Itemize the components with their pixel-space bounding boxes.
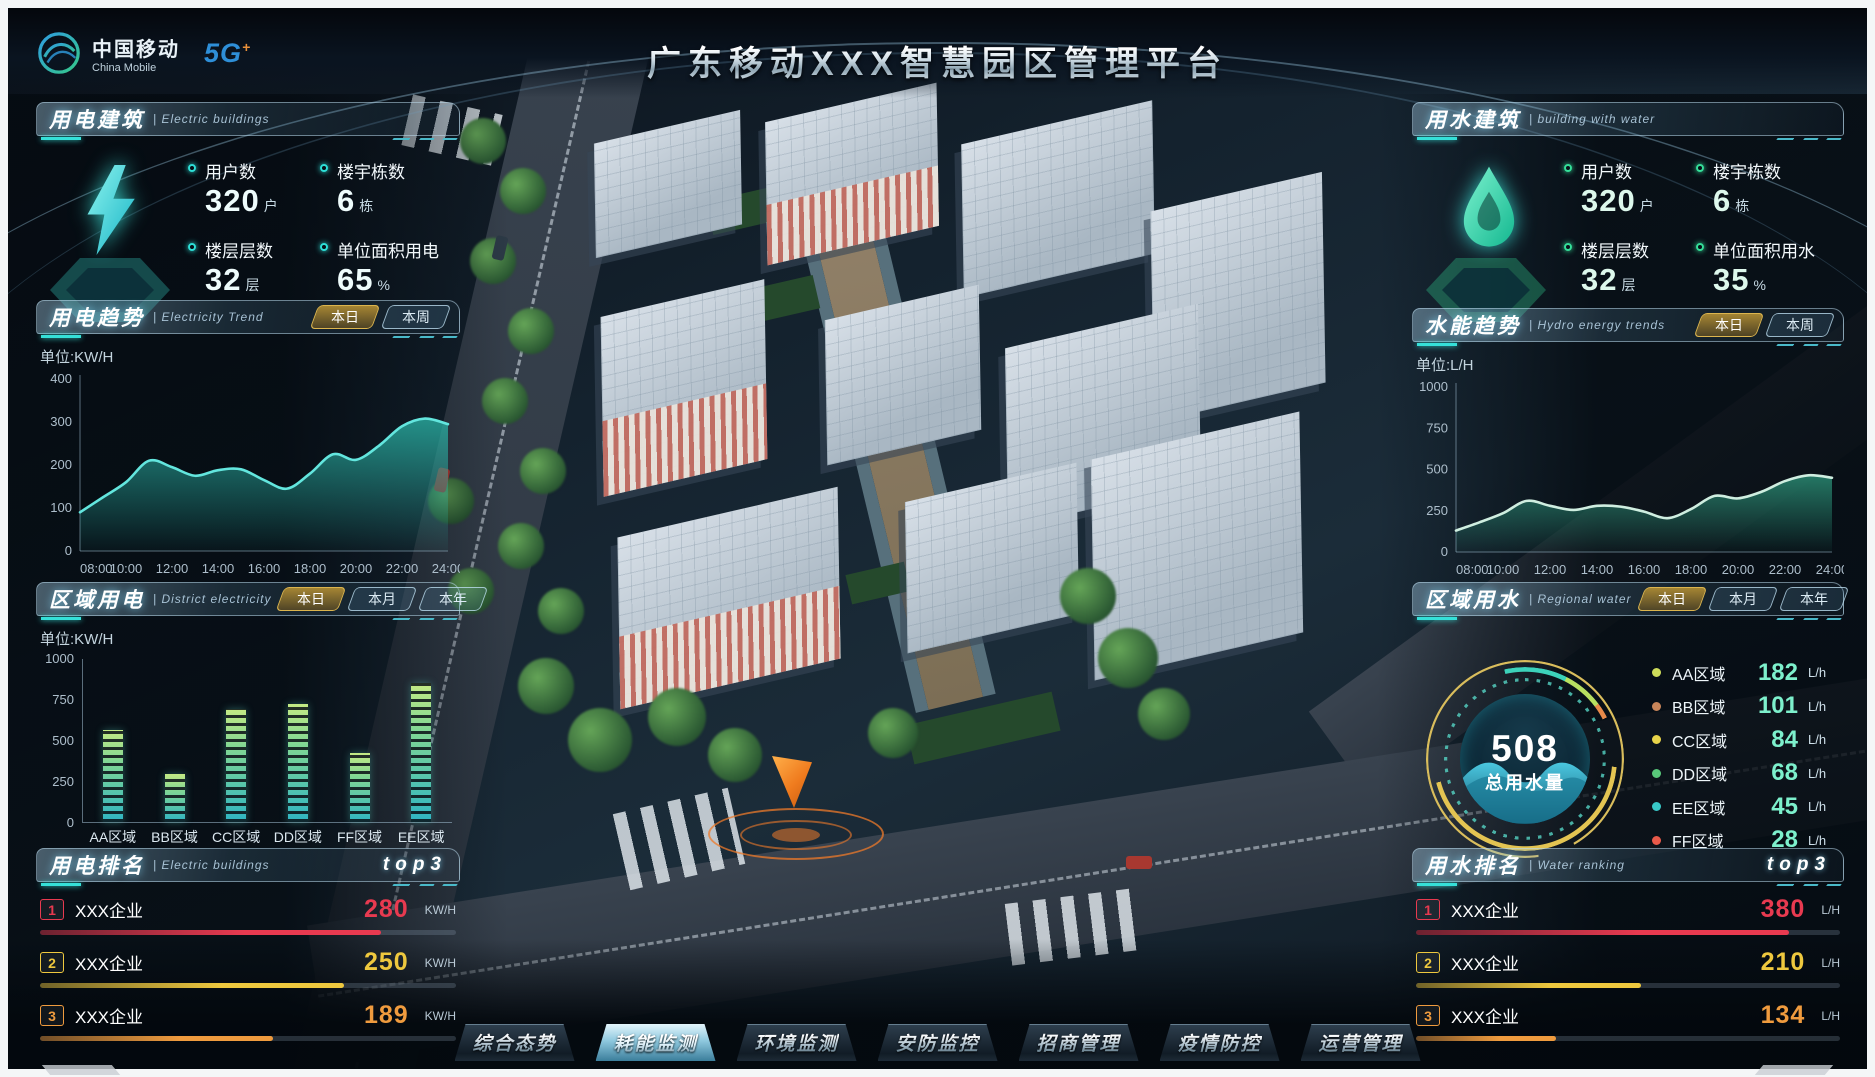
rank-value: 134 xyxy=(1761,1001,1806,1030)
tab-today[interactable]: 本日 xyxy=(276,587,347,611)
company-name: XXX企业 xyxy=(1451,950,1519,975)
svg-text:1000: 1000 xyxy=(1419,379,1448,394)
svg-text:400: 400 xyxy=(50,371,72,386)
tab-today[interactable]: 本日 xyxy=(1694,313,1765,337)
panel-title-bar: 用电建筑 | Electric buildings xyxy=(36,102,460,136)
svg-text:24:00: 24:00 xyxy=(1816,562,1844,577)
rank-badge: 2 xyxy=(40,952,64,973)
total-water-label: 总用水量 xyxy=(1460,769,1590,795)
rank-progress-track xyxy=(1416,930,1840,935)
panel-title: 用水建筑 xyxy=(1425,104,1521,134)
panel-subtitle: | Electric buildings xyxy=(153,112,270,126)
rank-progress-fill xyxy=(40,983,344,988)
tab-year[interactable]: 本年 xyxy=(1778,587,1849,611)
stat-dot-icon xyxy=(188,243,196,251)
svg-text:14:00: 14:00 xyxy=(1581,562,1614,577)
rank-badge: 3 xyxy=(40,1005,64,1026)
panel-water-building: 用水建筑 | building with water 用户数 320户 xyxy=(1412,102,1844,308)
svg-text:16:00: 16:00 xyxy=(248,561,281,576)
nav-item-investment-mgmt[interactable]: 招商管理 xyxy=(1019,1024,1139,1061)
panel-water-ranking: 用水排名 | Water ranking top3 1 XXX企业 380 L/… xyxy=(1412,848,1844,1041)
panel-subtitle: | District electricity xyxy=(153,592,271,606)
stat-dot-icon xyxy=(188,164,196,172)
rank-progress-track xyxy=(1416,1036,1840,1041)
legend-row: DD区域68L/h xyxy=(1652,757,1844,791)
tab-today[interactable]: 本日 xyxy=(310,305,381,329)
svg-text:16:00: 16:00 xyxy=(1628,562,1661,577)
panel-subtitle: | Regional water xyxy=(1529,592,1632,606)
stat-floors: 楼层层数 32层 xyxy=(188,237,310,298)
rank-progress-track xyxy=(40,1036,456,1041)
electricity-trend-chart: 010020030040008:0010:0012:0014:0016:0018… xyxy=(36,369,460,581)
svg-text:24:00: 24:00 xyxy=(432,561,460,576)
svg-text:20:00: 20:00 xyxy=(1722,562,1755,577)
panel-subtitle: | Electricity Trend xyxy=(153,310,264,324)
water-drop-icon xyxy=(1420,162,1552,312)
stat-dot-icon xyxy=(1696,243,1704,251)
title-dashes xyxy=(1776,884,1841,886)
panel-electricity-trend: 用电趋势 | Electricity Trend 本日 本周 单位:KW/H 0… xyxy=(36,300,460,586)
rank-progress-track xyxy=(40,983,456,988)
panel-electric-ranking: 用电排名 | Electric buildings top3 1 XXX企业 2… xyxy=(36,848,460,1041)
company-name: XXX企业 xyxy=(75,1003,143,1028)
total-water-value: 508 xyxy=(1460,728,1590,770)
panel-title-bar: 区域用电 | District electricity 本日 本月 本年 xyxy=(36,582,460,616)
panel-title: 用电趋势 xyxy=(49,302,145,332)
legend-dot-icon xyxy=(1652,769,1661,778)
panel-title-bar: 用水建筑 | building with water xyxy=(1412,102,1844,136)
legend-row: BB区域101L/h xyxy=(1652,690,1844,724)
company-name: XXX企业 xyxy=(1451,897,1519,922)
stat-dot-icon xyxy=(1564,164,1572,172)
rank-progress-track xyxy=(40,930,456,935)
rank-progress-fill xyxy=(1416,1036,1556,1041)
panel-title: 用电排名 xyxy=(49,850,145,880)
page-title: 广东移动XXX智慧园区管理平台 xyxy=(8,36,1867,85)
title-dashes xyxy=(392,336,457,338)
ranking-row: 3 XXX企业 134 L/H xyxy=(1416,1001,1840,1041)
stat-dot-icon xyxy=(320,164,328,172)
legend-dot-icon xyxy=(1652,836,1661,845)
rank-badge: 2 xyxy=(1416,952,1440,973)
tab-week[interactable]: 本周 xyxy=(381,305,452,329)
svg-text:500: 500 xyxy=(1426,462,1448,477)
rank-badge: 1 xyxy=(40,899,64,920)
svg-text:20:00: 20:00 xyxy=(340,561,373,576)
bottom-nav: 综合态势 耗能监测 环境监测 安防监控 招商管理 疫情防控 运营管理 xyxy=(455,1024,1421,1061)
rank-progress-fill xyxy=(40,1036,273,1041)
legend-dot-icon xyxy=(1652,668,1661,677)
stat-users: 用户数 320户 xyxy=(188,158,310,219)
panel-electric-building: 用电建筑 | Electric buildings 用户数 320户 楼宇栋数 xyxy=(36,102,460,308)
nav-item-operation-mgmt[interactable]: 运营管理 xyxy=(1301,1024,1421,1061)
stat-buildings: 楼宇栋数 6栋 xyxy=(320,158,439,219)
dashboard-frame: 中国移动 China Mobile 5G+ 广东移动XXX智慧园区管理平台 用电… xyxy=(0,0,1875,1077)
rank-badge: 1 xyxy=(1416,899,1440,920)
rank-value: 189 xyxy=(364,1001,409,1030)
ranking-row: 1 XXX企业 280 KW/H xyxy=(40,895,456,935)
legend-dot-icon xyxy=(1652,702,1661,711)
legend-dot-icon xyxy=(1652,735,1661,744)
svg-text:12:00: 12:00 xyxy=(156,561,189,576)
rank-progress-track xyxy=(1416,983,1840,988)
rank-value: 250 xyxy=(364,948,409,977)
title-dashes xyxy=(392,618,457,620)
top3-badge: top3 xyxy=(383,854,447,876)
company-name: XXX企业 xyxy=(1451,1003,1519,1028)
district-electricity-chart: 02505007501000AA区域BB区域CC区域DD区域FF区域EE区域 xyxy=(36,653,460,849)
svg-text:300: 300 xyxy=(50,414,72,429)
panel-title: 用电建筑 xyxy=(49,104,145,134)
header: 中国移动 China Mobile 5G+ 广东移动XXX智慧园区管理平台 xyxy=(8,8,1867,98)
svg-text:10:00: 10:00 xyxy=(1487,562,1520,577)
title-dashes xyxy=(392,884,457,886)
rank-progress-fill xyxy=(1416,930,1789,935)
tab-year[interactable]: 本年 xyxy=(418,587,489,611)
chart-unit-label: 单位:KW/H xyxy=(40,628,460,649)
panel-subtitle: | Hydro energy trends xyxy=(1529,318,1665,332)
stat-water-per-area: 单位面积用水 35% xyxy=(1696,237,1815,298)
svg-text:08:00: 08:00 xyxy=(1456,562,1489,577)
rank-value: 210 xyxy=(1761,948,1806,977)
top3-badge: top3 xyxy=(1767,854,1831,876)
water-legend: AA区域182L/h BB区域101L/h CC区域84L/h DD区域68L/… xyxy=(1652,656,1844,857)
chart-unit-label: 单位:L/H xyxy=(1416,354,1844,375)
svg-text:10:00: 10:00 xyxy=(110,561,143,576)
legend-row: AA区域182L/h xyxy=(1652,656,1844,690)
hydro-trend-chart: 0250500750100008:0010:0012:0014:0016:001… xyxy=(1412,377,1844,582)
panel-title-bar: 用电趋势 | Electricity Trend 本日 本周 xyxy=(36,300,460,334)
legend-row: CC区域84L/h xyxy=(1652,723,1844,757)
stat-buildings: 楼宇栋数 6栋 xyxy=(1696,158,1815,219)
panel-title: 区域用电 xyxy=(49,584,145,614)
panel-title-bar: 用电排名 | Electric buildings top3 xyxy=(36,848,460,882)
stat-dot-icon xyxy=(1696,164,1704,172)
ranking-row: 3 XXX企业 189 KW/H xyxy=(40,1001,456,1041)
stat-users: 用户数 320户 xyxy=(1564,158,1686,219)
panel-title-bar: 用水排名 | Water ranking top3 xyxy=(1412,848,1844,882)
chart-unit-label: 单位:KW/H xyxy=(40,346,460,367)
panel-subtitle: | Water ranking xyxy=(1529,858,1625,872)
ranking-row: 1 XXX企业 380 L/H xyxy=(1416,895,1840,935)
svg-text:12:00: 12:00 xyxy=(1534,562,1567,577)
panel-subtitle: | Electric buildings xyxy=(153,858,270,872)
panel-title-bar: 水能趋势 | Hydro energy trends 本日 本周 xyxy=(1412,308,1844,342)
svg-text:0: 0 xyxy=(65,543,72,558)
rank-badge: 3 xyxy=(1416,1005,1440,1026)
nav-item-epidemic-control[interactable]: 疫情防控 xyxy=(1160,1024,1280,1061)
panel-subtitle: | building with water xyxy=(1529,112,1655,126)
svg-text:18:00: 18:00 xyxy=(1675,562,1708,577)
company-name: XXX企业 xyxy=(75,950,143,975)
tab-month[interactable]: 本月 xyxy=(1707,587,1778,611)
rank-progress-fill xyxy=(40,930,381,935)
total-water-gauge: 508 总用水量 xyxy=(1426,660,1624,858)
rank-value: 380 xyxy=(1761,895,1806,924)
tab-today[interactable]: 本日 xyxy=(1636,587,1707,611)
nav-item-environment-monitor[interactable]: 环境监测 xyxy=(737,1024,857,1061)
ranking-row: 2 XXX企业 210 L/H xyxy=(1416,948,1840,988)
rank-value: 280 xyxy=(364,895,409,924)
svg-text:22:00: 22:00 xyxy=(1769,562,1802,577)
frame-corner-deco xyxy=(1755,1065,1833,1075)
panel-title: 用水排名 xyxy=(1425,850,1521,880)
svg-text:22:00: 22:00 xyxy=(386,561,419,576)
company-name: XXX企业 xyxy=(75,897,143,922)
svg-text:100: 100 xyxy=(50,500,72,515)
svg-text:08:00: 08:00 xyxy=(80,561,113,576)
frame-corner-deco xyxy=(42,1065,120,1075)
panel-regional-water: 区域用水 | Regional water 本日 本月 本年 xyxy=(1412,582,1844,862)
rank-progress-fill xyxy=(1416,983,1641,988)
stat-dot-icon xyxy=(1564,243,1572,251)
ranking-row: 2 XXX企业 250 KW/H xyxy=(40,948,456,988)
svg-text:14:00: 14:00 xyxy=(202,561,235,576)
tab-month[interactable]: 本月 xyxy=(347,587,418,611)
stat-electricity-per-area: 单位面积用电 65% xyxy=(320,237,439,298)
legend-dot-icon xyxy=(1652,802,1661,811)
legend-row: EE区域45L/h xyxy=(1652,790,1844,824)
svg-text:200: 200 xyxy=(50,457,72,472)
panel-title: 区域用水 xyxy=(1425,584,1521,614)
svg-text:750: 750 xyxy=(1426,420,1448,435)
panel-district-electricity: 区域用电 | District electricity 本日 本月 本年 单位:… xyxy=(36,582,460,849)
svg-text:250: 250 xyxy=(1426,503,1448,518)
nav-item-energy-monitor[interactable]: 耗能监测 xyxy=(596,1024,716,1061)
nav-item-security-monitor[interactable]: 安防监控 xyxy=(878,1024,998,1061)
dashboard-canvas: 中国移动 China Mobile 5G+ 广东移动XXX智慧园区管理平台 用电… xyxy=(8,8,1867,1069)
panel-title: 水能趋势 xyxy=(1425,310,1521,340)
tab-week[interactable]: 本周 xyxy=(1765,313,1836,337)
stat-dot-icon xyxy=(320,243,328,251)
nav-item-overview[interactable]: 综合态势 xyxy=(455,1024,575,1061)
svg-text:0: 0 xyxy=(1441,544,1448,559)
lightning-icon xyxy=(44,162,176,312)
panel-hydro-trend: 水能趋势 | Hydro energy trends 本日 本周 单位:L/H … xyxy=(1412,308,1844,587)
title-dashes xyxy=(1776,344,1841,346)
stat-floors: 楼层层数 32层 xyxy=(1564,237,1686,298)
svg-text:18:00: 18:00 xyxy=(294,561,327,576)
panel-title-bar: 区域用水 | Regional water 本日 本月 本年 xyxy=(1412,582,1844,616)
